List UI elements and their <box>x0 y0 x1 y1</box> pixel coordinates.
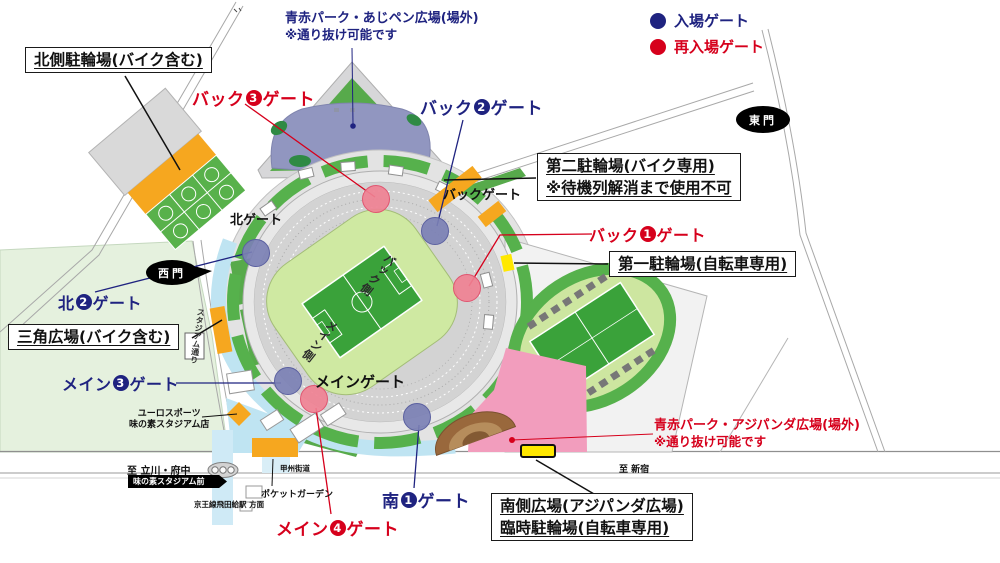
stadium-access-map: 入場ゲート 再入場ゲート 青赤パーク・あじペン広場(場外) ※通り抜け可能です … <box>0 0 1000 563</box>
gate-dot-minami1 <box>404 404 431 431</box>
main-gate-label: メインゲート <box>315 371 405 392</box>
gate-label-main3: メイン3ゲート <box>62 371 179 395</box>
legend-reentry-label: 再入場ゲート <box>674 36 764 57</box>
gate-dot-back3 <box>363 186 390 213</box>
gate-number-badge: 1 <box>640 226 656 242</box>
gate-label-main4: メイン4ゲート <box>276 515 399 540</box>
gate-label-back1: バック1ゲート <box>589 222 706 246</box>
temp-bicycle-parking-marker <box>521 445 555 457</box>
back-gate-label: バックゲート <box>443 184 521 203</box>
gate-label-minami1: 南1ゲート <box>382 487 470 512</box>
gate-number-badge: 4 <box>330 520 346 536</box>
triangle-plaza-box: 三角広場(バイク含む) <box>8 324 179 350</box>
kita-gate-label: 北ゲート <box>230 209 282 228</box>
north-parking-box: 北側駐輪場(バイク含む) <box>25 47 212 73</box>
gate-number-badge: 1 <box>401 492 417 508</box>
gate-dot-back2 <box>422 218 449 245</box>
north-plaza-note: 青赤パーク・あじペン広場(場外) ※通り抜け可能です <box>285 11 479 43</box>
gate-number-badge: 2 <box>474 99 490 115</box>
west-gate-door: 西門 <box>146 260 198 285</box>
entry-gate-dot-icon <box>650 13 666 29</box>
gate-label-back2: バック2ゲート <box>420 94 543 119</box>
south-plaza-box: 南側広場(アジパンダ広場) 臨時駐輪場(自転車専用) <box>491 493 693 541</box>
legend-entry-label: 入場ゲート <box>674 10 749 31</box>
pocket-garden-label: ポケットガーデン <box>261 487 333 500</box>
gate-number-badge: 3 <box>246 90 262 106</box>
gate-label-back3: バック3ゲート <box>192 85 315 110</box>
koshu-kaido-label: 甲州街道 <box>280 463 310 474</box>
gate-dot-kita2 <box>243 240 270 267</box>
to-tachikawa-label: 至 立川・府中 <box>127 462 190 477</box>
keio-station-label: 京王線飛田給駅 方面 <box>194 499 264 510</box>
gate-label-kita2: 北2ゲート <box>58 290 142 314</box>
euro-sports-label: ユーロスポーツ 味の素スタジアム店 <box>129 409 209 431</box>
to-shinjuku-label: 至 新宿 <box>619 462 649 475</box>
gate-dot-main3 <box>275 368 302 395</box>
reentry-gate-dot-icon <box>650 39 666 55</box>
gate-number-badge: 3 <box>113 375 129 391</box>
second-parking-box: 第二駐輪場(バイク専用) ※待機列解消まで使用不可 <box>537 153 741 201</box>
east-gate-door: 東門 <box>736 106 790 133</box>
north-parking-block <box>89 88 249 252</box>
pocket-garden-building <box>252 438 298 457</box>
legend: 入場ゲート 再入場ゲート <box>650 10 764 57</box>
gate-number-badge: 2 <box>76 294 92 310</box>
gate-dot-back1 <box>454 275 481 302</box>
south-plaza-note: 青赤パーク・アジパンダ広場(場外) ※通り抜け可能です <box>654 418 860 450</box>
first-parking-box: 第一駐輪場(自転車専用) <box>609 251 796 277</box>
